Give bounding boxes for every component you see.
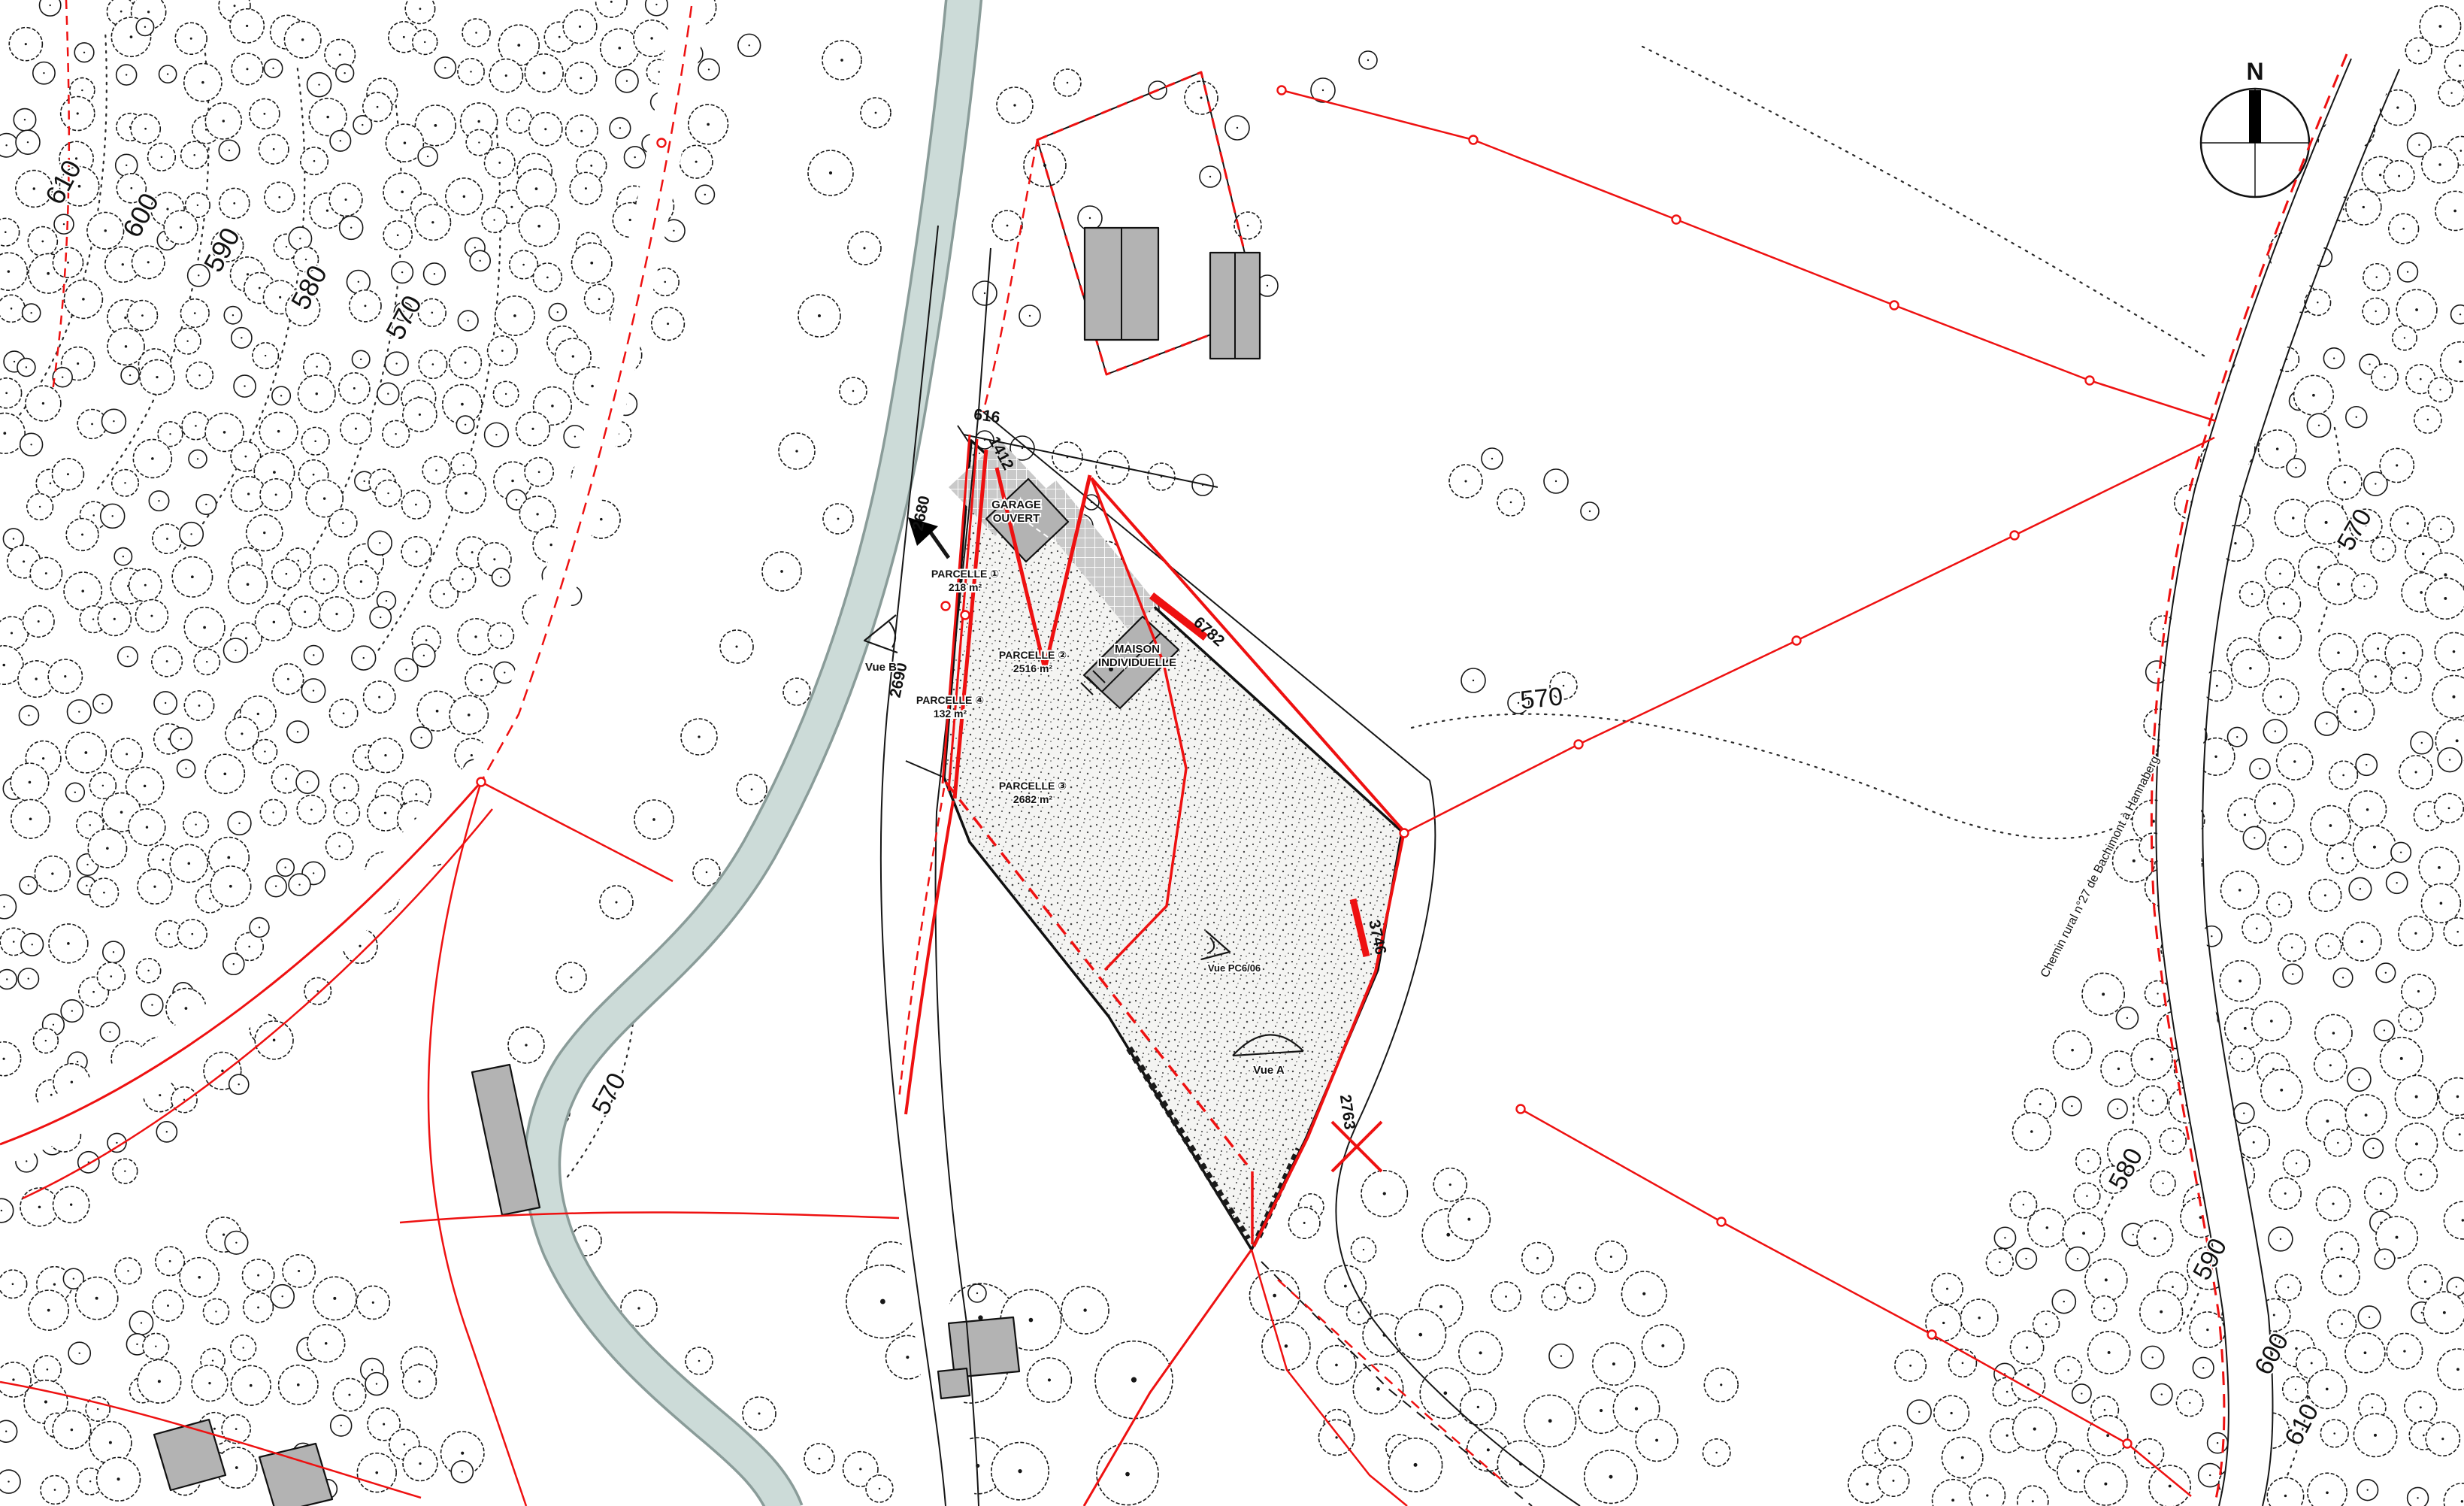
- tree-center-dot: [47, 272, 50, 275]
- tree-center-dot: [286, 573, 288, 575]
- tree-center-dot: [2202, 1367, 2204, 1368]
- tree-center-dot: [2326, 723, 2327, 724]
- tree-center-dot: [618, 47, 621, 50]
- tree-center-dot: [116, 1142, 117, 1144]
- tree-center-dot: [169, 1260, 171, 1262]
- tree-center-dot: [323, 497, 325, 499]
- tree-center-dot: [2071, 1049, 2074, 1052]
- tree-center-dot: [1866, 1483, 1869, 1486]
- tree-center-dot: [32, 944, 33, 945]
- tree-center-dot: [2360, 888, 2361, 889]
- tree-center-dot: [2275, 730, 2276, 732]
- tree-center-dot: [2295, 1389, 2296, 1390]
- north-label: N: [2246, 58, 2263, 85]
- tree-center-dot: [245, 637, 247, 639]
- tree-center-dot: [1467, 1218, 1470, 1221]
- tree-center-dot: [658, 71, 660, 72]
- tree-center-dot: [74, 792, 76, 793]
- tree-center-dot: [180, 738, 182, 739]
- tree-center-dot: [12, 1283, 14, 1285]
- tree-center-dot: [1267, 285, 1268, 286]
- tree-center-dot: [26, 366, 27, 368]
- tree-center-dot: [194, 312, 196, 314]
- tree-center-dot: [2364, 1351, 2367, 1354]
- parcelle-3-label: PARCELLE ③: [999, 780, 1067, 792]
- tree-center-dot: [353, 387, 356, 389]
- tree-center-dot: [162, 859, 165, 861]
- tree-center-dot: [205, 504, 207, 505]
- tree-center-dot: [546, 277, 549, 279]
- tree-center-dot: [2199, 1216, 2202, 1219]
- tree-center-dot: [2356, 417, 2357, 418]
- tree-center-dot: [130, 187, 132, 189]
- tree-center-dot: [493, 558, 495, 560]
- tree-center-dot: [2333, 1432, 2335, 1435]
- tree-center-dot: [14, 361, 15, 362]
- tree-center-dot: [1479, 1351, 1482, 1354]
- tree-center-dot: [1439, 1305, 1442, 1308]
- tree-center-dot: [2329, 824, 2332, 827]
- tree-symbol: [646, 0, 667, 16]
- tree-center-dot: [2363, 206, 2365, 208]
- tree-center-dot: [1555, 480, 1557, 482]
- tree-center-dot: [557, 311, 558, 313]
- tree-center-dot: [2443, 1311, 2446, 1314]
- tree-center-dot: [273, 621, 275, 623]
- tree-center-dot: [1006, 225, 1009, 227]
- tree-center-dot: [615, 901, 617, 903]
- tree-center-dot: [325, 1342, 327, 1344]
- tree-center-dot: [2452, 695, 2455, 698]
- tree-center-dot: [2341, 688, 2344, 691]
- tree-center-dot: [235, 650, 236, 651]
- tree-center-dot: [1443, 1392, 1447, 1395]
- tree-center-dot: [403, 36, 405, 38]
- tree-center-dot: [571, 977, 573, 979]
- tree-center-dot: [2172, 1141, 2173, 1142]
- tree-center-dot: [92, 991, 95, 993]
- tree-center-dot: [363, 480, 365, 482]
- tree-center-dot: [141, 314, 144, 317]
- tree-center-dot: [501, 350, 504, 352]
- boundary-point: [1400, 829, 1409, 838]
- tree-center-dot: [698, 735, 700, 738]
- boundary-point: [1718, 1218, 1726, 1226]
- tree-center-dot: [126, 74, 127, 75]
- tree-center-dot: [580, 77, 582, 79]
- tree-center-dot: [53, 1024, 54, 1026]
- tree-center-dot: [1335, 1436, 1337, 1438]
- tree-center-dot: [600, 518, 603, 521]
- tree-center-dot: [2333, 357, 2335, 359]
- tree-center-dot: [275, 493, 277, 495]
- tree-center-dot: [2071, 1105, 2072, 1107]
- tree-center-dot: [83, 52, 85, 53]
- tree-center-dot: [537, 225, 540, 228]
- tree-center-dot: [2244, 1027, 2247, 1030]
- tree-center-dot: [2441, 1438, 2444, 1440]
- tree-center-dot: [2105, 1278, 2108, 1281]
- tree-center-dot: [423, 655, 425, 656]
- tree-center-dot: [2459, 360, 2462, 363]
- tree-center-dot: [467, 320, 468, 321]
- tree-center-dot: [2375, 311, 2376, 312]
- tree-center-dot: [2283, 602, 2285, 605]
- tree-center-dot: [313, 872, 314, 874]
- tree-center-dot: [339, 53, 341, 56]
- tree-center-dot: [5, 392, 8, 394]
- tree-center-dot: [313, 160, 316, 162]
- tree-center-dot: [1909, 1365, 1912, 1367]
- tree-center-dot: [477, 120, 480, 123]
- tree-center-dot: [364, 305, 366, 307]
- tree-center-dot: [350, 227, 352, 229]
- tree-center-dot: [2369, 363, 2370, 365]
- tree-center-dot: [113, 420, 114, 422]
- tree-center-dot: [667, 323, 669, 325]
- tree-center-dot: [169, 433, 171, 435]
- tree-center-dot: [2284, 1192, 2287, 1195]
- tree-center-dot: [2287, 1286, 2289, 1288]
- tree-center-dot: [2006, 1391, 2008, 1393]
- tree-center-dot: [247, 68, 249, 70]
- tree-center-dot: [195, 823, 196, 825]
- tree-center-dot: [2279, 573, 2281, 575]
- tree-center-dot: [193, 154, 195, 156]
- tree-center-dot: [3, 432, 6, 435]
- tree-center-dot: [2087, 1160, 2089, 1162]
- tree-center-dot: [151, 457, 154, 460]
- tree-center-dot: [2151, 1058, 2154, 1061]
- tree-center-dot: [2385, 972, 2387, 974]
- tree-center-dot: [2420, 1174, 2422, 1176]
- tree-center-dot: [2459, 1133, 2461, 1135]
- tree-center-dot: [2456, 931, 2459, 933]
- tree-center-dot: [2439, 389, 2441, 390]
- tree-center-dot: [796, 691, 798, 693]
- tree-center-dot: [2405, 677, 2407, 679]
- tree-center-dot: [110, 975, 112, 977]
- tree-center-dot: [2169, 1485, 2172, 1488]
- site-plan-page: 6106005905805705705705705805906006106161…: [0, 0, 2464, 1506]
- tree-center-dot: [277, 430, 280, 433]
- tree-center-dot: [500, 635, 501, 636]
- tree-center-dot: [2400, 851, 2402, 853]
- tree-center-dot: [637, 1307, 640, 1309]
- tree-center-dot: [474, 635, 477, 638]
- tree-center-dot: [159, 1094, 161, 1096]
- tree-center-dot: [493, 219, 495, 220]
- tree-center-dot: [2396, 1236, 2399, 1239]
- tree-center-dot: [2444, 597, 2447, 600]
- tree-center-dot: [2133, 859, 2136, 862]
- tree-center-dot: [852, 390, 855, 392]
- tree-center-dot: [2358, 1079, 2360, 1080]
- tree-center-dot: [238, 823, 240, 824]
- tree-center-dot: [590, 165, 592, 167]
- tree-center-dot: [704, 194, 706, 195]
- tree-center-dot: [2023, 1204, 2024, 1205]
- tree-center-dot: [186, 340, 188, 341]
- tree-center-dot: [310, 808, 313, 811]
- tree-center-dot: [2317, 566, 2320, 569]
- tree-center-dot: [313, 474, 315, 476]
- tree-center-dot: [53, 1283, 56, 1286]
- tree-center-dot: [89, 824, 91, 826]
- tree-center-dot: [244, 385, 245, 386]
- tree-center-dot: [2217, 1442, 2218, 1444]
- tree-center-dot: [1111, 466, 1113, 468]
- tree-center-dot: [287, 678, 289, 680]
- tree-center-dot: [2410, 1018, 2411, 1020]
- tree-center-dot: [395, 362, 397, 364]
- tree-center-dot: [78, 711, 80, 712]
- tree-center-dot: [247, 273, 249, 275]
- tree-center-dot: [435, 469, 437, 471]
- tree-center-dot: [158, 1380, 161, 1383]
- tree-symbol: [0, 1470, 20, 1493]
- tree-center-dot: [664, 281, 666, 283]
- tree-center-dot: [2039, 1103, 2042, 1105]
- tree-center-dot: [365, 756, 366, 758]
- tree-center-dot: [695, 161, 698, 163]
- tree-center-dot: [147, 261, 150, 263]
- tree-center-dot: [1978, 1317, 1980, 1319]
- tree-center-dot: [2398, 175, 2400, 177]
- tree-center-dot: [591, 385, 594, 388]
- tree-center-dot: [54, 1489, 56, 1491]
- tree-center-dot: [431, 221, 434, 223]
- tree-center-dot: [203, 626, 206, 629]
- tree-center-dot: [2284, 1495, 2287, 1497]
- tree-center-dot: [2280, 695, 2282, 698]
- tree-center-dot: [2415, 308, 2418, 311]
- tree-center-dot: [223, 431, 226, 434]
- tree-center-dot: [2339, 1274, 2342, 1277]
- tree-center-dot: [130, 35, 133, 38]
- tree-center-dot: [549, 544, 552, 546]
- tree-center-dot: [2337, 1142, 2339, 1144]
- tree-center-dot: [2456, 1095, 2459, 1098]
- tree-center-dot: [1344, 1285, 1347, 1288]
- tree-center-dot: [2211, 935, 2212, 937]
- tree-center-dot: [213, 1428, 216, 1430]
- tree-center-dot: [122, 263, 124, 265]
- tree-center-dot: [431, 312, 434, 314]
- tree-center-dot: [2438, 25, 2441, 28]
- tree-center-dot: [2341, 1323, 2343, 1326]
- tree-center-dot: [619, 127, 621, 129]
- tree-center-dot: [81, 533, 83, 535]
- tree-center-dot: [2373, 846, 2376, 849]
- tree-center-dot: [2324, 894, 2326, 896]
- boundary-point: [1793, 637, 1801, 645]
- tree-center-dot: [241, 732, 243, 735]
- tree-center-dot: [2295, 467, 2296, 468]
- tree-center-dot: [780, 570, 783, 573]
- tree-center-dot: [2238, 889, 2242, 892]
- tree-center-dot: [126, 753, 128, 755]
- tree-center-dot: [2259, 768, 2260, 769]
- boundary-point: [1890, 302, 1899, 310]
- tree-center-dot: [120, 811, 123, 814]
- tree-center-dot: [212, 1359, 213, 1361]
- tree-center-dot: [384, 812, 386, 814]
- tree-center-dot: [379, 542, 380, 544]
- tree-center-dot: [1018, 1469, 1022, 1473]
- tree-center-dot: [28, 977, 29, 979]
- tree-center-dot: [275, 886, 277, 887]
- tree-center-dot: [2415, 771, 2417, 773]
- tree-center-dot: [462, 578, 463, 580]
- tree-center-dot: [33, 187, 35, 189]
- tree-center-dot: [147, 970, 149, 971]
- tree-center-dot: [355, 428, 357, 430]
- tree-center-dot: [248, 946, 250, 948]
- tree-center-dot: [1473, 680, 1474, 681]
- tree-center-dot: [5, 144, 7, 146]
- tree-center-dot: [2234, 542, 2236, 544]
- tree-center-dot: [2423, 1435, 2425, 1437]
- tree-center-dot: [232, 314, 234, 316]
- tree-center-dot: [471, 754, 473, 756]
- tree-center-dot: [2449, 759, 2450, 760]
- tree-center-dot: [1655, 1439, 1658, 1442]
- parcelle-3-area: 2682 m²: [1013, 793, 1052, 805]
- tree-center-dot: [263, 532, 265, 534]
- tree-center-dot: [2360, 940, 2363, 943]
- tree-center-dot: [518, 120, 519, 121]
- tree-center-dot: [513, 314, 516, 317]
- tree-center-dot: [5, 1431, 7, 1432]
- tree-center-dot: [2276, 447, 2279, 450]
- tree-center-dot: [880, 1299, 885, 1304]
- tree-center-dot: [166, 660, 168, 662]
- tree-center-dot: [629, 219, 631, 221]
- tree-center-dot: [650, 37, 652, 39]
- tree-center-dot: [208, 1382, 210, 1384]
- tree-center-dot: [795, 450, 798, 452]
- tree-center-dot: [144, 26, 146, 28]
- tree-center-dot: [403, 1444, 405, 1446]
- tree-center-dot: [2077, 1470, 2080, 1473]
- tree-center-dot: [41, 241, 44, 243]
- tree-center-dot: [2172, 1286, 2174, 1288]
- tree-center-dot: [516, 499, 517, 501]
- tree-center-dot: [598, 298, 601, 300]
- tree-center-dot: [840, 59, 843, 62]
- tree-center-dot: [2459, 150, 2462, 152]
- tree-center-dot: [313, 654, 314, 656]
- tree-center-dot: [2417, 50, 2419, 51]
- tree-center-dot: [2063, 1301, 2065, 1302]
- tree-center-dot: [362, 124, 363, 126]
- tree-center-dot: [183, 1098, 185, 1100]
- tree-center-dot: [111, 515, 113, 517]
- maison-label-line2: INDIVIDUELLE: [1098, 656, 1176, 669]
- tree-center-dot: [3, 1058, 5, 1060]
- site-plan-canvas: 6106005905805705705705705805906006106161…: [0, 0, 2464, 1506]
- tree-center-dot: [2456, 1286, 2457, 1287]
- tree-center-dot: [190, 38, 192, 40]
- tree-center-dot: [574, 435, 576, 437]
- tree-center-dot: [2342, 977, 2344, 978]
- tree-center-dot: [2326, 1120, 2329, 1123]
- tree-center-dot: [345, 198, 347, 201]
- boundary-point: [1928, 1331, 1936, 1339]
- tree-center-dot: [579, 26, 581, 28]
- tree-center-dot: [387, 393, 389, 395]
- tree-center-dot: [247, 492, 250, 495]
- tree-center-dot: [463, 195, 465, 198]
- parcelle-1-area: 218 m²: [949, 581, 982, 593]
- tree-center-dot: [465, 362, 467, 364]
- tree-center-dot: [536, 513, 538, 515]
- tree-center-dot: [415, 793, 417, 795]
- tree-center-dot: [259, 287, 261, 289]
- tree-center-dot: [326, 210, 328, 212]
- tree-center-dot: [2407, 271, 2408, 272]
- tree-center-dot: [525, 1044, 527, 1046]
- tree-center-dot: [2256, 928, 2258, 930]
- tree-center-dot: [819, 1458, 821, 1460]
- tree-center-dot: [197, 458, 198, 459]
- tree-center-dot: [2209, 1474, 2211, 1476]
- tree-center-dot: [3, 906, 5, 908]
- tree-center-dot: [2366, 808, 2369, 811]
- tree-center-dot: [462, 464, 464, 465]
- tree-center-dot: [401, 191, 404, 194]
- tree-center-dot: [1477, 1406, 1479, 1408]
- tree-center-dot: [2420, 1406, 2422, 1408]
- tree-center-dot: [2440, 529, 2441, 530]
- tree-center-dot: [278, 196, 280, 198]
- tree-center-dot: [2106, 1434, 2109, 1437]
- tree-center-dot: [758, 1412, 760, 1414]
- tree-center-dot: [227, 856, 230, 859]
- tree-center-dot: [2326, 1388, 2329, 1391]
- tree-center-dot: [113, 951, 114, 953]
- tree-center-dot: [2400, 1057, 2403, 1060]
- tree-center-dot: [2, 664, 5, 667]
- tree-center-dot: [2030, 1130, 2033, 1133]
- tree-center-dot: [97, 1408, 98, 1410]
- tree-center-dot: [156, 376, 158, 378]
- tree-center-dot: [2421, 1312, 2423, 1314]
- tree-center-dot: [1237, 127, 1238, 129]
- tree-center-dot: [63, 223, 65, 225]
- tree-center-dot: [2117, 1108, 2118, 1110]
- tree-center-dot: [2417, 990, 2420, 992]
- tree-center-dot: [2438, 866, 2441, 869]
- tree-center-dot: [299, 238, 301, 239]
- tree-center-dot: [2396, 106, 2399, 108]
- boundary-point: [1278, 86, 1286, 95]
- tree-center-dot: [166, 1131, 168, 1132]
- tree-center-dot: [2081, 1392, 2082, 1394]
- tree-center-dot: [551, 405, 554, 408]
- tree-center-dot: [432, 363, 434, 365]
- tree-center-dot: [2427, 815, 2429, 817]
- tree-center-dot: [2006, 1435, 2008, 1437]
- tree-center-dot: [298, 560, 299, 562]
- tree-center-dot: [81, 89, 83, 91]
- vue-a-label: Vue A: [1253, 1064, 1285, 1077]
- boundary-point: [2123, 1440, 2132, 1448]
- tree-center-dot: [436, 710, 439, 713]
- tree-center-dot: [102, 785, 104, 786]
- tree-center-dot: [386, 600, 387, 601]
